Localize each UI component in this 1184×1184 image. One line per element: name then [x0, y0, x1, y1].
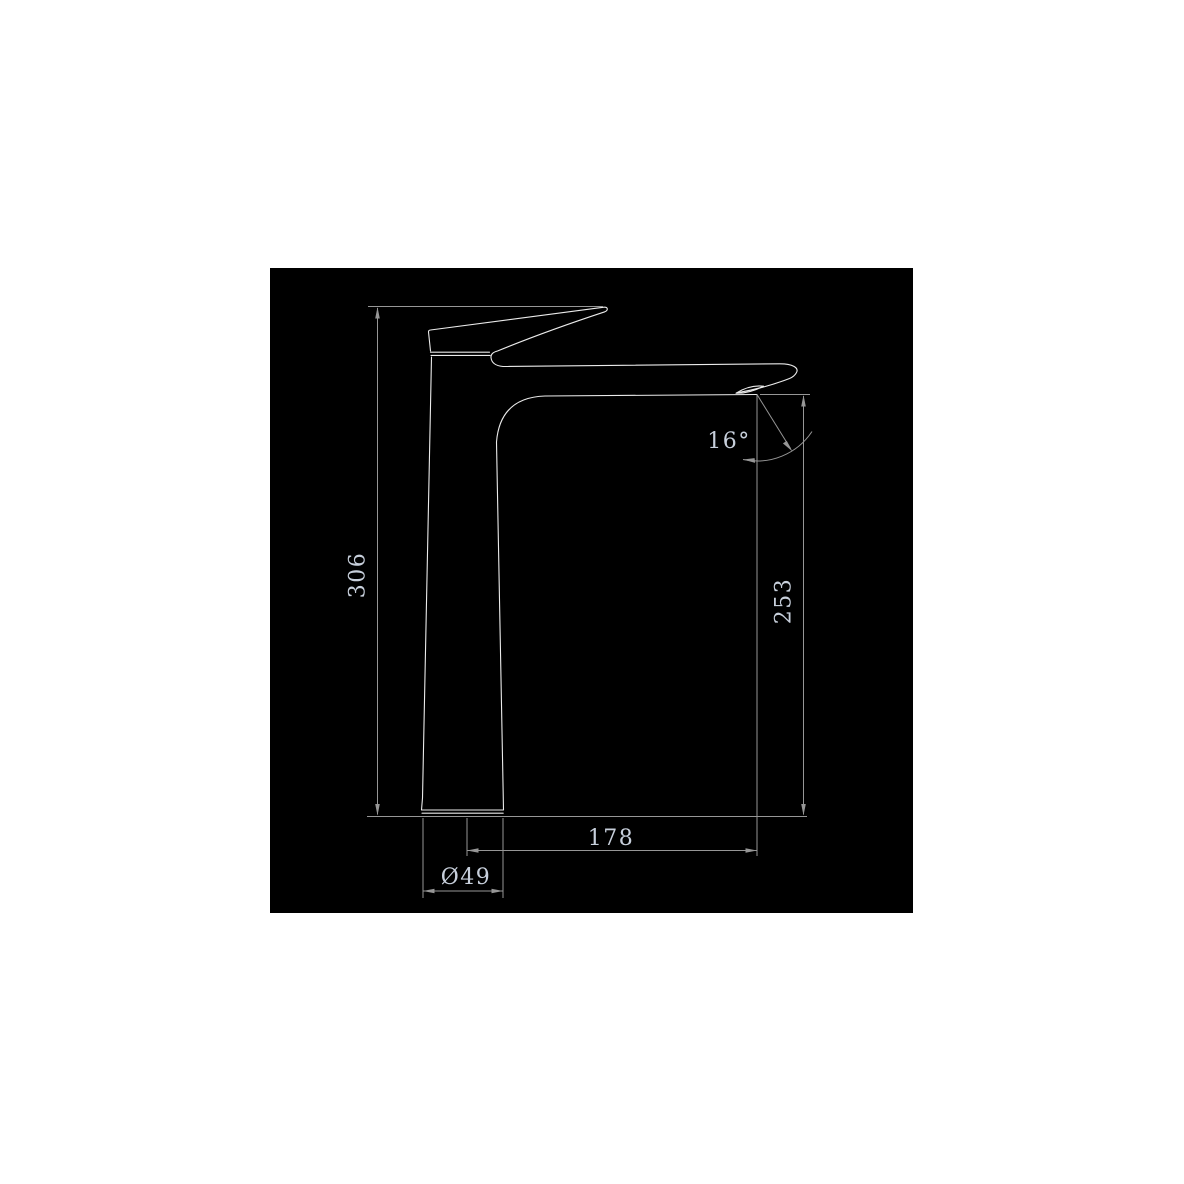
label-height-spout: 253: [772, 578, 797, 625]
label-base-diameter: Ø49: [441, 865, 492, 890]
arrow-angle-arc: [743, 458, 755, 463]
page-background: 306 253 178 Ø49 16°: [0, 0, 1184, 1184]
arrow-height-total-top: [375, 307, 380, 319]
arrow-height-spout-top: [801, 395, 806, 407]
drawing-panel: 306 253 178 Ø49 16°: [270, 268, 913, 913]
label-height-total: 306: [346, 552, 371, 599]
label-reach: 178: [588, 826, 635, 851]
body-outline: [422, 357, 758, 810]
dimension-labels-group: 306 253 178 Ø49 16°: [346, 429, 797, 890]
faucet-outline-group: [422, 307, 798, 813]
arrow-base-left: [423, 889, 435, 894]
label-spout-angle: 16°: [707, 429, 751, 454]
arrow-height-spout-bottom: [801, 804, 806, 816]
arrow-reach-left: [467, 848, 479, 853]
angle-arc: [743, 432, 812, 462]
faucet-technical-drawing: 306 253 178 Ø49 16°: [270, 268, 913, 913]
angle-ray: [757, 395, 791, 449]
arrow-reach-right: [746, 848, 758, 853]
arrow-height-total-bottom: [375, 804, 380, 816]
arrow-angle-ray: [783, 441, 793, 452]
handle-outline: [428, 307, 607, 366]
arrow-base-right: [492, 889, 504, 894]
spout-top-edge: [503, 364, 797, 393]
